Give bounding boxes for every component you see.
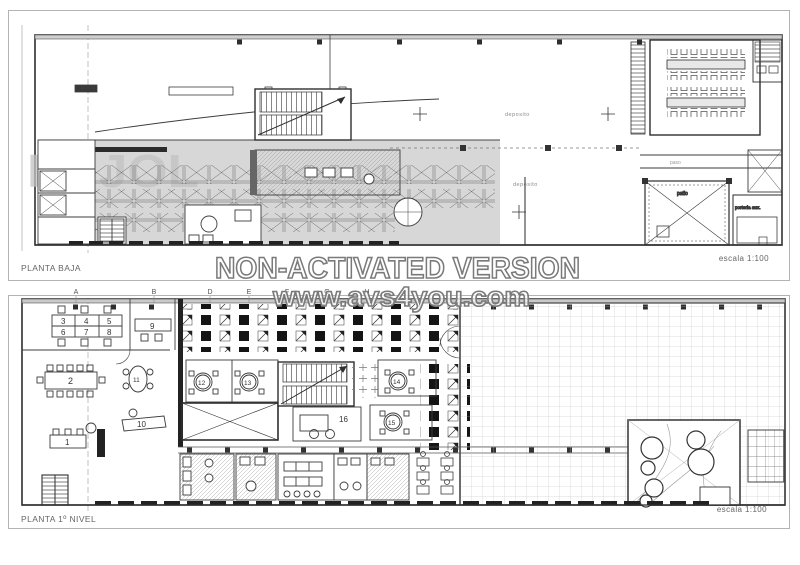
room-2-conference: 2 bbox=[37, 365, 105, 397]
plan-scale-1-nivel: escala 1:100 bbox=[717, 505, 767, 514]
room-label-porteria: porteria aux. bbox=[735, 205, 761, 210]
plan-scale-baja: escala 1:100 bbox=[719, 254, 769, 263]
bottom-facade-1nivel bbox=[22, 503, 785, 505]
plan-title-baja: PLANTA BAJA bbox=[21, 263, 81, 273]
desk-group-3-8: 3 4 5 6 7 8 bbox=[52, 306, 122, 346]
room-label-paso: paso bbox=[670, 160, 681, 166]
room-number-4: 4 bbox=[84, 317, 89, 326]
room-number-15: 15 bbox=[388, 420, 396, 427]
meeting-room-topright bbox=[631, 40, 782, 135]
room-number-1: 1 bbox=[65, 438, 70, 447]
room-number-10: 10 bbox=[137, 420, 146, 429]
small-tables-column bbox=[417, 452, 453, 495]
central-stair bbox=[278, 362, 354, 406]
stair-bottom-left bbox=[42, 475, 68, 505]
room-number-11: 11 bbox=[133, 377, 140, 384]
sanitary-block-left bbox=[185, 205, 261, 244]
plus-grid-zone bbox=[352, 364, 378, 398]
room-number-8: 8 bbox=[107, 328, 112, 337]
room-number-5: 5 bbox=[107, 317, 112, 326]
room-number-6: 6 bbox=[61, 328, 66, 337]
planta-1-nivel-drawing: 3 4 5 6 7 8 9 bbox=[9, 296, 789, 528]
room-16: 16 bbox=[293, 407, 361, 441]
room-number-12: 12 bbox=[198, 380, 206, 387]
patio-court: patio bbox=[642, 178, 732, 245]
sheet-planta-baja: PUJOL bbox=[8, 10, 790, 281]
room-number-16: 16 bbox=[339, 415, 348, 424]
drawing-page: PUJOL bbox=[0, 0, 800, 565]
room-number-7: 7 bbox=[84, 328, 89, 337]
rooms-1-10: 1 10 bbox=[50, 409, 166, 457]
room-number-2: 2 bbox=[68, 376, 73, 386]
rooms-12-13: 12 13 bbox=[186, 360, 278, 402]
planta-baja-drawing: PUJOL bbox=[9, 11, 789, 280]
room-label-deposito-lower: deposito bbox=[513, 182, 538, 188]
room-number-3: 3 bbox=[61, 317, 66, 326]
room-label-deposito-upper: deposito bbox=[505, 112, 530, 118]
skylight-room bbox=[182, 403, 278, 440]
room-label-patio: patio bbox=[677, 191, 688, 197]
patio-garden bbox=[628, 420, 740, 507]
sheet-planta-1-nivel: 3 4 5 6 7 8 9 bbox=[8, 295, 790, 529]
room-number-13: 13 bbox=[244, 380, 252, 387]
plan-title-1-nivel: PLANTA 1º NIVEL bbox=[21, 514, 96, 524]
room-number-14: 14 bbox=[393, 379, 401, 386]
central-stair-core bbox=[255, 89, 351, 140]
porteria-aux-room: porteria aux. bbox=[733, 195, 782, 245]
room-number-9: 9 bbox=[150, 322, 155, 331]
service-strip bbox=[180, 454, 409, 500]
table-11: 11 bbox=[123, 366, 153, 392]
side-patio bbox=[748, 150, 782, 192]
pergola-grid bbox=[748, 430, 784, 482]
